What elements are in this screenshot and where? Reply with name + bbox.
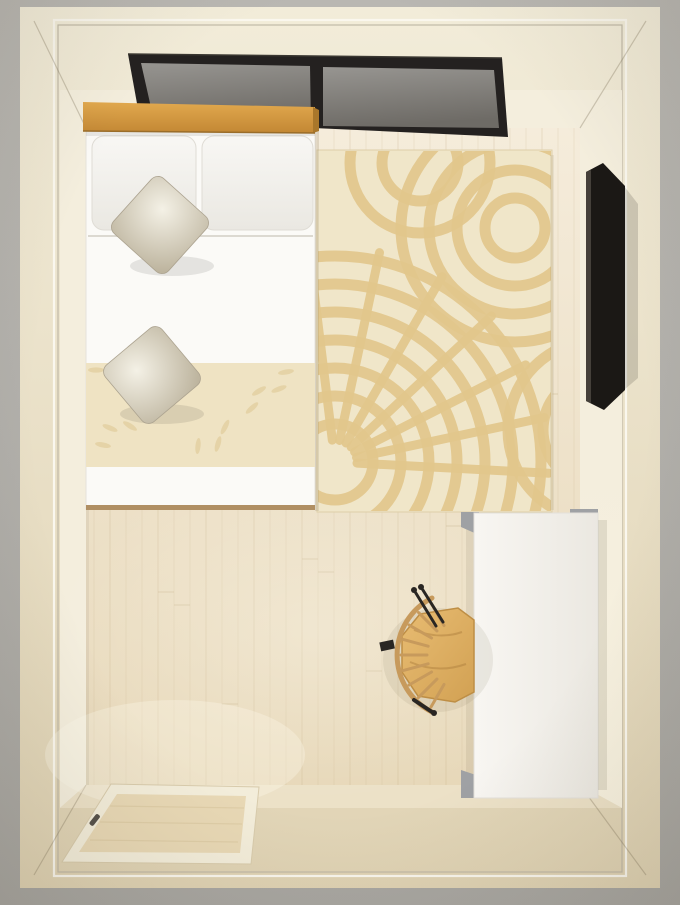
- tv: [586, 163, 638, 410]
- tv-edge-highlight: [586, 170, 591, 403]
- window-glass-right: [323, 67, 499, 128]
- headboard: [83, 102, 315, 133]
- pillow-right: [202, 136, 313, 230]
- headboard-end-cap: [313, 107, 319, 133]
- bedroom-top-view: [0, 0, 680, 905]
- pen-knob-1: [411, 587, 417, 593]
- wardrobe-right-shadow: [598, 520, 607, 790]
- pen-knob-2: [418, 584, 424, 590]
- rug-edge-shadow: [550, 155, 554, 510]
- bed: [83, 102, 319, 511]
- bed-right-shadow: [315, 131, 319, 511]
- tv-shadow: [624, 186, 638, 390]
- tv-body: [586, 163, 625, 410]
- room-render: [0, 0, 680, 905]
- bed-footboard-edge: [86, 505, 315, 510]
- accessory-knob: [431, 710, 437, 716]
